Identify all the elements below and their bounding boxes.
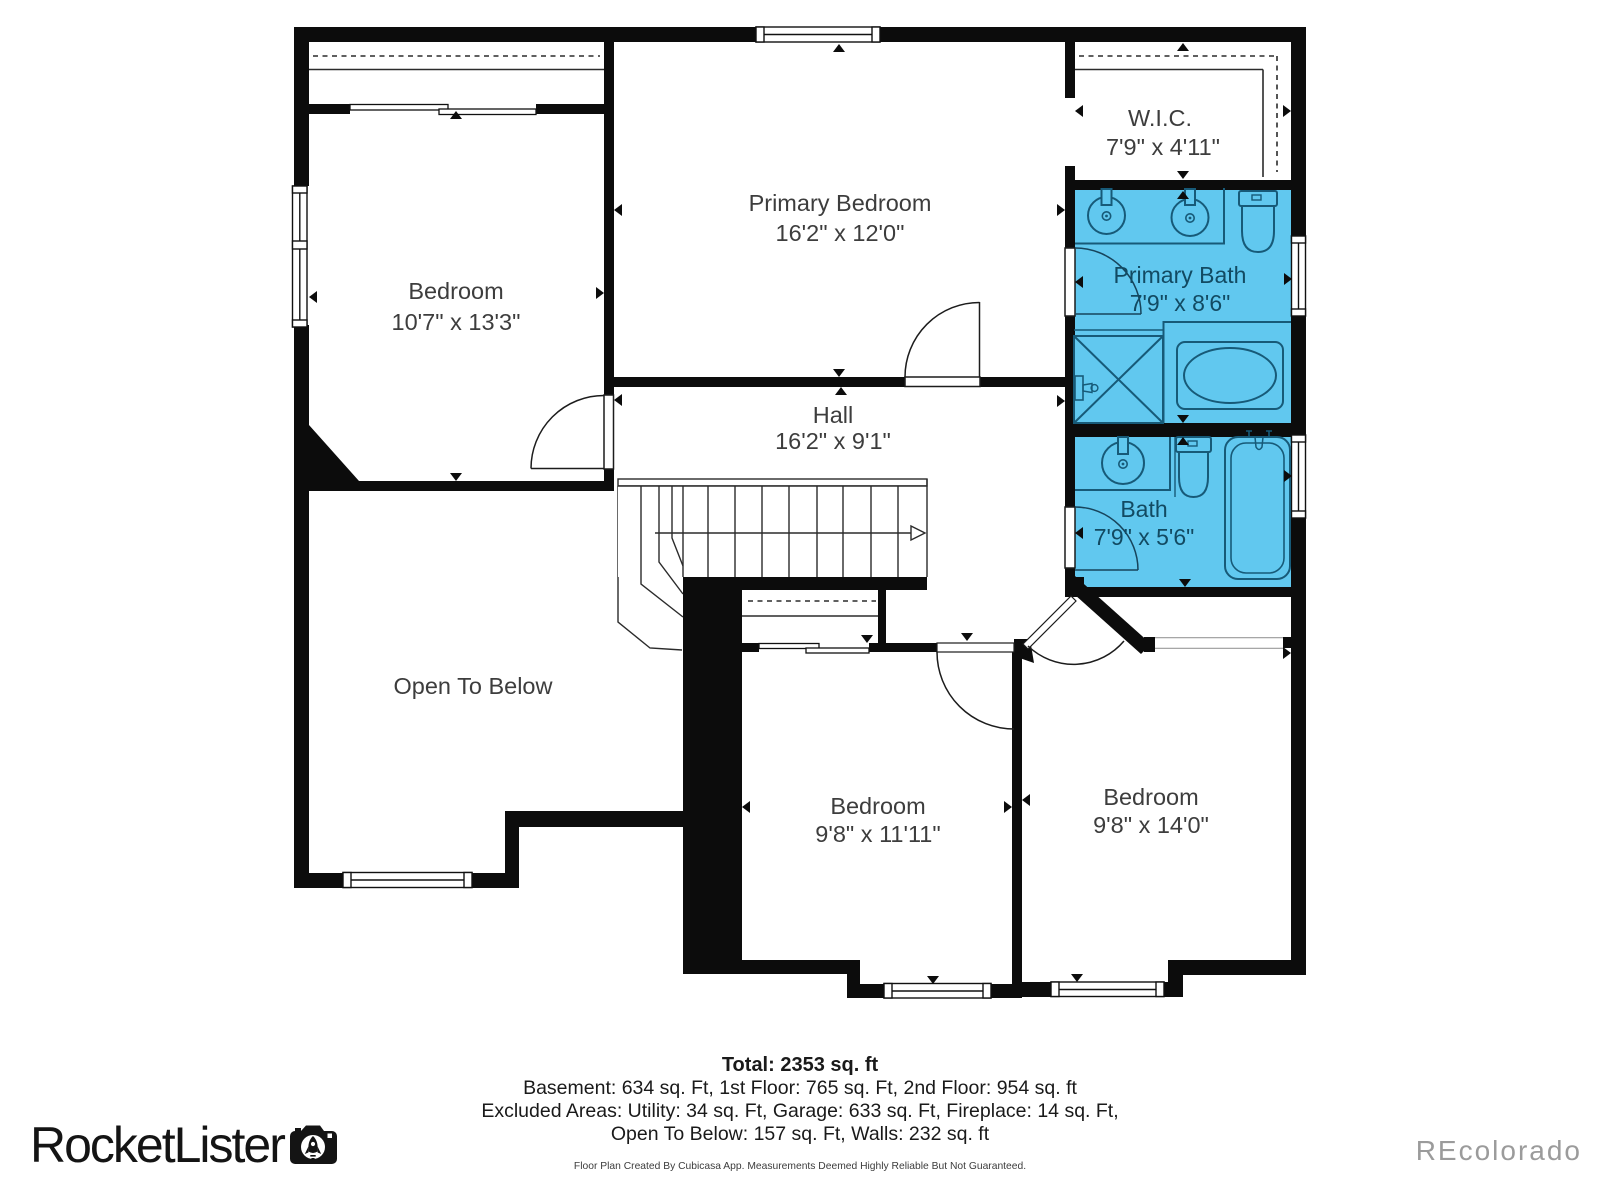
- svg-text:Excluded Areas: Utility: 34 sq: Excluded Areas: Utility: 34 sq. Ft, Gara…: [481, 1100, 1118, 1122]
- svg-text:Open To Below: Open To Below: [394, 673, 554, 699]
- svg-text:Open To Below: 157 sq. Ft, Wal: Open To Below: 157 sq. Ft, Walls: 232 sq…: [611, 1123, 990, 1145]
- svg-text:Bath: Bath: [1120, 496, 1167, 522]
- svg-text:7'9" x 5'6": 7'9" x 5'6": [1094, 524, 1195, 550]
- svg-text:Primary Bath: Primary Bath: [1114, 262, 1247, 288]
- svg-text:Bedroom: Bedroom: [1103, 784, 1198, 810]
- svg-text:Basement: 634 sq. Ft, 1st Floo: Basement: 634 sq. Ft, 1st Floor: 765 sq.…: [523, 1077, 1077, 1099]
- svg-text:Total: 2353 sq. ft: Total: 2353 sq. ft: [722, 1054, 879, 1076]
- svg-text:Hall: Hall: [813, 402, 853, 428]
- svg-text:Bedroom: Bedroom: [408, 278, 503, 304]
- svg-text:16'2" x 12'0": 16'2" x 12'0": [776, 220, 905, 246]
- svg-text:Floor Plan Created By Cubicasa: Floor Plan Created By Cubicasa App. Meas…: [574, 1161, 1026, 1172]
- svg-text:REcolorado: REcolorado: [1416, 1135, 1582, 1166]
- svg-text:9'8" x 11'11": 9'8" x 11'11": [815, 821, 940, 847]
- svg-text:7'9" x 4'11": 7'9" x 4'11": [1106, 134, 1220, 160]
- svg-text:W.I.C.: W.I.C.: [1128, 105, 1192, 131]
- svg-text:Primary Bedroom: Primary Bedroom: [749, 190, 932, 216]
- svg-text:7'9" x 8'6": 7'9" x 8'6": [1130, 290, 1231, 316]
- svg-text:16'2" x 9'1": 16'2" x 9'1": [775, 428, 891, 454]
- svg-text:RocketLister: RocketLister: [30, 1117, 285, 1173]
- svg-text:10'7" x 13'3": 10'7" x 13'3": [392, 309, 521, 335]
- svg-text:Bedroom: Bedroom: [830, 793, 925, 819]
- svg-text:9'8" x 14'0": 9'8" x 14'0": [1093, 812, 1209, 838]
